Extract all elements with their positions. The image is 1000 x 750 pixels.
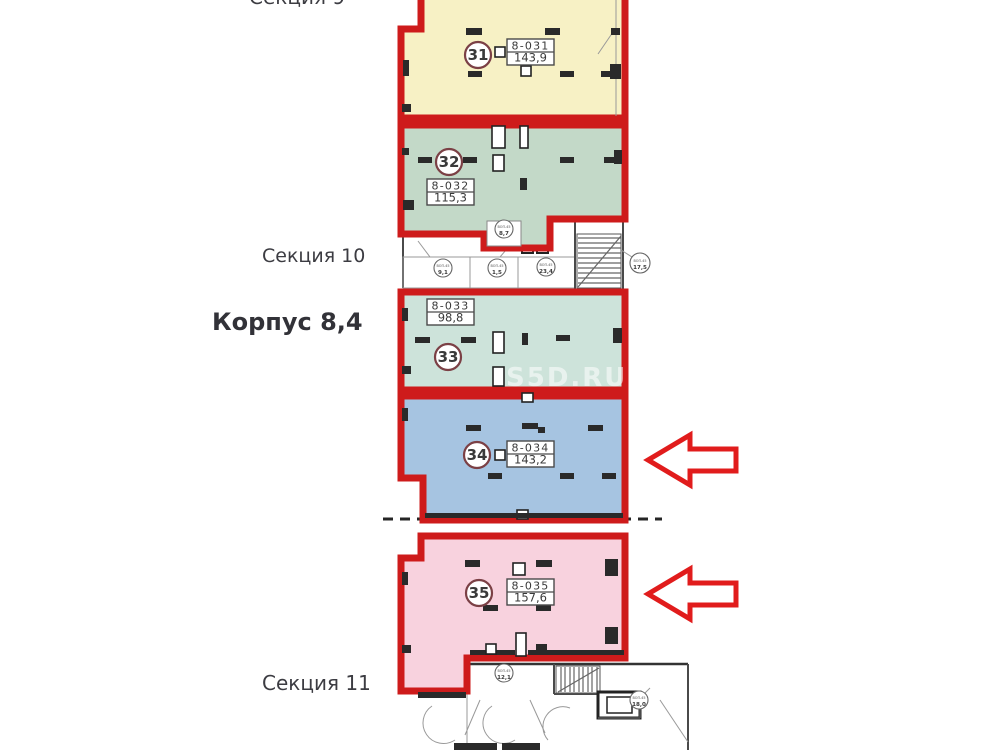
unit-33-number-badge: 33: [435, 344, 461, 370]
svg-text:9,1: 9,1: [438, 270, 448, 276]
svg-text:23,4: 23,4: [539, 269, 553, 275]
svg-text:ВОП-45: ВОП-45: [539, 263, 552, 267]
watermark: S5D.RU: [506, 363, 627, 393]
svg-text:18,0: 18,0: [632, 702, 646, 708]
unit-32-label: 8-032 115,3: [427, 179, 474, 205]
unit-31-number-badge: 31: [465, 42, 491, 68]
svg-text:143,9: 143,9: [514, 51, 547, 65]
svg-text:33: 33: [438, 348, 459, 366]
svg-text:ВОП-45: ВОП-45: [497, 225, 510, 229]
svg-text:157,6: 157,6: [514, 591, 547, 605]
svg-text:35: 35: [469, 584, 490, 602]
service-badge-1-5: ВОП-45 1,5: [488, 259, 506, 277]
svg-text:ВОП-45: ВОП-45: [497, 669, 510, 673]
svg-text:ВОП-45: ВОП-45: [633, 259, 646, 263]
stairs: [577, 234, 621, 288]
svg-text:1,5: 1,5: [492, 270, 502, 276]
service-badge-9-1: ВОП-45 9,1: [434, 259, 452, 277]
svg-text:12,1: 12,1: [497, 675, 511, 681]
service-badge-23-4: ВОП-45 23,4: [537, 258, 555, 276]
floor-plan-drawing: 31 32 33 34 35 8-031 143,9 8-032: [0, 0, 1000, 750]
svg-text:34: 34: [467, 446, 488, 464]
floor-plan-page: Секция 9 Секция 10 Корпус 8,4 Секция 11: [0, 0, 1000, 750]
left-arrow-unit-35: [648, 569, 736, 619]
unit-35-label: 8-035 157,6: [507, 579, 554, 605]
unit-31-label: 8-031 143,9: [507, 39, 554, 65]
unit-34-label: 8-034 143,2: [507, 441, 554, 467]
service-badge-8-7: ВОП-45 8,7: [495, 220, 513, 238]
svg-text:17,5: 17,5: [633, 265, 647, 271]
svg-text:115,3: 115,3: [434, 191, 467, 205]
svg-text:31: 31: [468, 46, 489, 64]
service-badge-18-0: ВОП-45 18,0: [630, 691, 648, 709]
unit-34-number-badge: 34: [464, 442, 490, 468]
svg-text:32: 32: [439, 153, 460, 171]
unit-33-label: 8-033 98,8: [427, 299, 474, 325]
svg-text:143,2: 143,2: [514, 453, 547, 467]
svg-text:98,8: 98,8: [438, 311, 464, 325]
leader-line: [645, 688, 650, 693]
service-badge-17-5: ВОП-45 17,5: [630, 253, 650, 273]
service-badge-12-1: ВОП-45 12,1: [495, 664, 513, 682]
svg-text:ВОП-45: ВОП-45: [490, 264, 503, 268]
unit-32-number-badge: 32: [436, 149, 462, 175]
elevator-car: [607, 697, 632, 713]
stairs: [556, 666, 600, 693]
svg-text:ВОП-45: ВОП-45: [436, 264, 449, 268]
unit-35-number-badge: 35: [466, 580, 492, 606]
left-arrow-unit-34: [648, 435, 736, 485]
svg-text:8,7: 8,7: [499, 231, 509, 237]
svg-text:ВОП-45: ВОП-45: [632, 696, 645, 700]
